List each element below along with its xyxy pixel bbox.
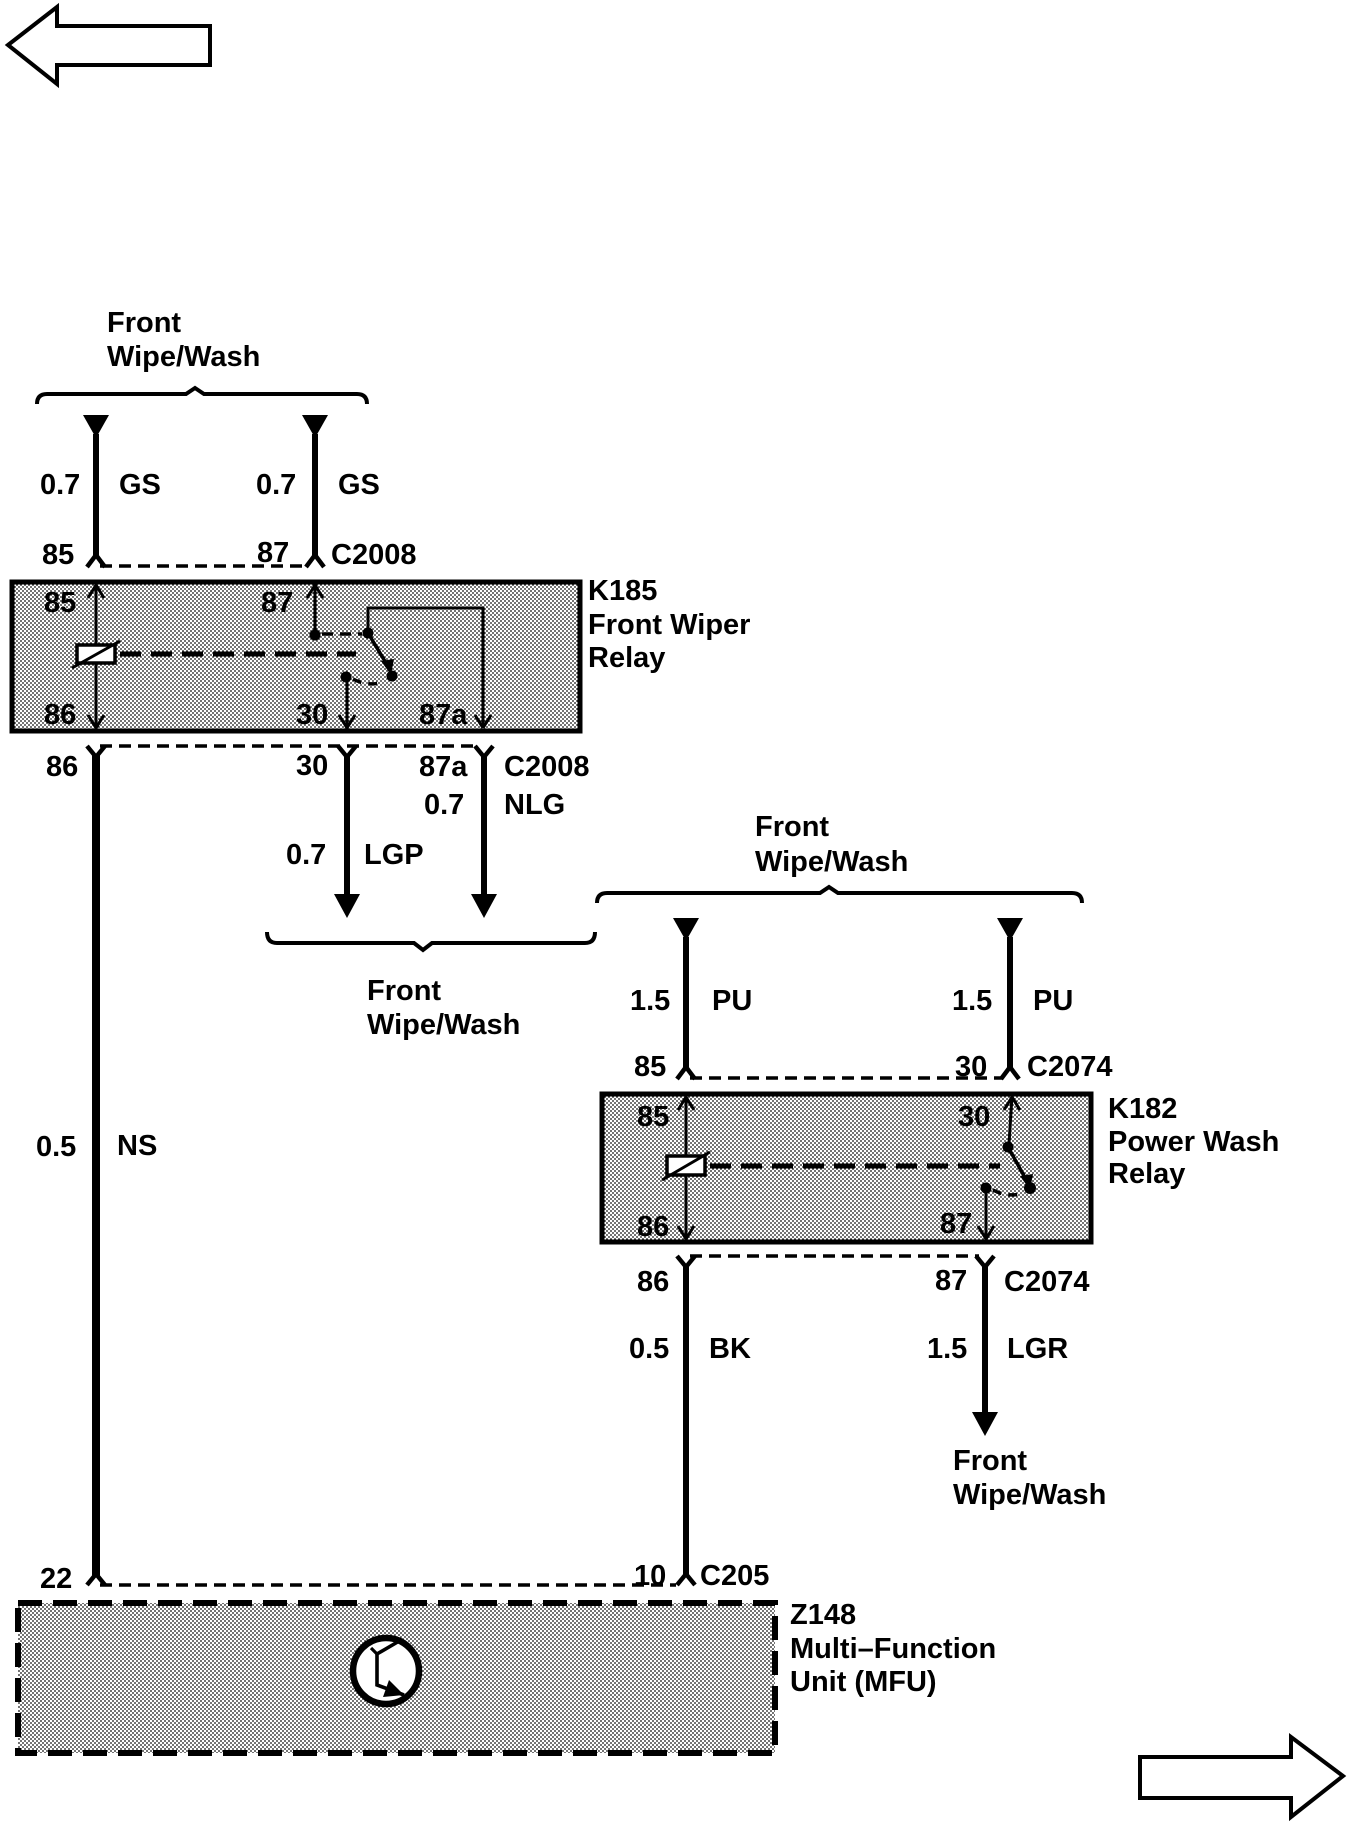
svg-text:1.5: 1.5	[952, 985, 992, 1017]
svg-text:Relay: Relay	[1108, 1158, 1185, 1190]
svg-text:1.5: 1.5	[630, 985, 670, 1017]
svg-text:86: 86	[46, 751, 78, 783]
svg-text:87a: 87a	[419, 751, 468, 783]
svg-text:87: 87	[257, 537, 289, 569]
svg-text:0.5: 0.5	[36, 1131, 76, 1163]
svg-text:87: 87	[940, 1208, 972, 1240]
svg-text:Front: Front	[755, 811, 829, 843]
svg-text:BK: BK	[709, 1333, 751, 1365]
svg-text:22: 22	[40, 1563, 72, 1595]
svg-text:Multi–Function: Multi–Function	[790, 1633, 996, 1665]
svg-text:GS: GS	[119, 469, 161, 501]
svg-text:C205: C205	[700, 1560, 769, 1592]
svg-text:Relay: Relay	[588, 642, 665, 674]
svg-text:Front: Front	[107, 307, 181, 339]
svg-text:Wipe/Wash: Wipe/Wash	[367, 1009, 520, 1041]
svg-text:Power Wash: Power Wash	[1108, 1126, 1279, 1158]
svg-text:87: 87	[261, 587, 293, 619]
svg-text:0.7: 0.7	[286, 839, 326, 871]
svg-text:C2074: C2074	[1004, 1266, 1089, 1298]
svg-text:K182: K182	[1108, 1093, 1177, 1125]
svg-text:GS: GS	[338, 469, 380, 501]
svg-text:C2008: C2008	[331, 539, 416, 571]
svg-text:10: 10	[634, 1560, 666, 1592]
svg-text:Wipe/Wash: Wipe/Wash	[953, 1479, 1106, 1511]
svg-text:85: 85	[44, 587, 76, 619]
svg-text:0.7: 0.7	[256, 469, 296, 501]
svg-text:0.5: 0.5	[629, 1333, 669, 1365]
svg-text:Front: Front	[367, 975, 441, 1007]
svg-text:PU: PU	[712, 985, 752, 1017]
svg-text:0.7: 0.7	[40, 469, 80, 501]
svg-text:C2074: C2074	[1027, 1051, 1112, 1083]
svg-text:PU: PU	[1033, 985, 1073, 1017]
svg-text:86: 86	[637, 1266, 669, 1298]
svg-text:Unit (MFU): Unit (MFU)	[790, 1666, 937, 1698]
svg-text:85: 85	[634, 1051, 666, 1083]
svg-text:Z148: Z148	[790, 1599, 856, 1631]
svg-text:NS: NS	[117, 1130, 157, 1162]
svg-text:87a: 87a	[419, 699, 468, 731]
svg-text:87: 87	[935, 1265, 967, 1297]
svg-text:86: 86	[44, 699, 76, 731]
svg-text:85: 85	[637, 1101, 669, 1133]
svg-text:Wipe/Wash: Wipe/Wash	[755, 846, 908, 878]
svg-text:30: 30	[296, 750, 328, 782]
svg-text:Front Wiper: Front Wiper	[588, 609, 750, 641]
svg-text:C2008: C2008	[504, 751, 589, 783]
svg-text:NLG: NLG	[504, 789, 565, 821]
svg-text:0.7: 0.7	[424, 789, 464, 821]
svg-text:30: 30	[958, 1101, 990, 1133]
svg-text:1.5: 1.5	[927, 1333, 967, 1365]
svg-text:LGR: LGR	[1007, 1333, 1068, 1365]
svg-text:K185: K185	[588, 575, 657, 607]
svg-text:85: 85	[42, 539, 74, 571]
svg-text:LGP: LGP	[364, 839, 424, 871]
svg-text:Wipe/Wash: Wipe/Wash	[107, 341, 260, 373]
svg-text:30: 30	[296, 699, 328, 731]
svg-text:86: 86	[637, 1211, 669, 1243]
svg-text:Front: Front	[953, 1445, 1027, 1477]
